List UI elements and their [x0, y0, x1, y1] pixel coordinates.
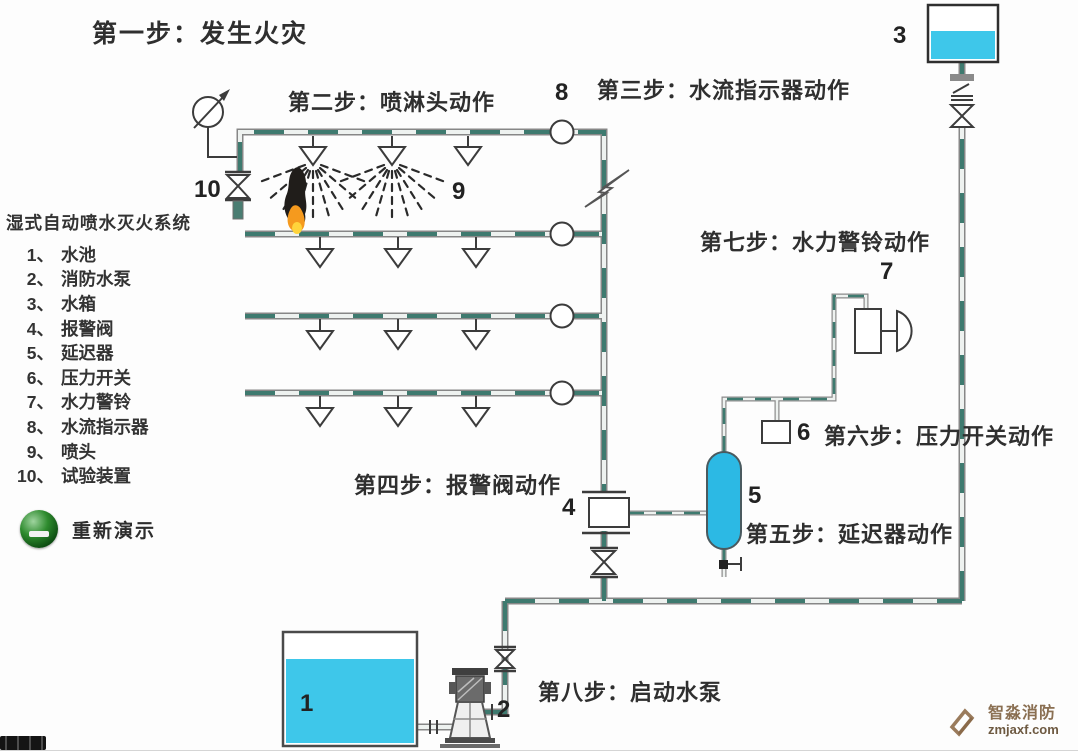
- flow-indicator-icons: [551, 121, 574, 405]
- wet-sprinkler-system-demo: 第一步：发生火灾 第二步：喷淋头动作 第三步：水流指示器动作 第四步：报警阀动作…: [0, 0, 1078, 751]
- component-number-pool: 1: [300, 690, 313, 718]
- water-pool-icon: [283, 632, 417, 746]
- step-1-label: 第一步：发生火灾: [92, 14, 308, 50]
- sprinkler-head-icon: [379, 147, 405, 165]
- fire-icon: [284, 167, 306, 234]
- component-number-tank: 3: [893, 22, 906, 50]
- sprinkler-row-2: [307, 237, 489, 267]
- watermark-logo-icon: [948, 701, 982, 741]
- legend-item-5: 5、延迟器: [12, 340, 242, 365]
- component-number-retarder: 5: [748, 482, 761, 510]
- sprinkler-row-1: [300, 136, 481, 165]
- step-7-label: 第七步：水力警铃动作: [700, 225, 930, 257]
- replay-button-label: 重新演示: [72, 516, 156, 543]
- sprinkler-row-3: [307, 319, 489, 349]
- step-4-label: 第四步：报警阀动作: [354, 468, 561, 500]
- sprinkler-row-4: [307, 396, 489, 426]
- step-5-label: 第五步：延迟器动作: [746, 517, 953, 549]
- legend-item-7: 7、水力警铃: [12, 390, 242, 415]
- legend-item-8: 8、水流指示器: [12, 414, 242, 439]
- legend-item-4: 4、报警阀: [12, 316, 242, 341]
- step-3-label: 第三步：水流指示器动作: [597, 73, 850, 105]
- discharge-check-valve-icon: [494, 647, 516, 671]
- spray-pattern: [257, 165, 448, 222]
- legend-item-9: 9、喷头: [12, 439, 242, 464]
- step-2-label: 第二步：喷淋头动作: [288, 85, 495, 117]
- corner-badge: [0, 736, 46, 750]
- water-tank-icon: [928, 5, 998, 62]
- legend-list: 1、水池 2、消防水泵 3、水箱 4、报警阀 5、延迟器 6、压力开关 7、水力…: [12, 242, 242, 488]
- legend-item-10: 10、试验装置: [12, 463, 242, 488]
- legend-item-1: 1、水池: [12, 242, 242, 267]
- step-8-label: 第八步：启动水泵: [538, 675, 722, 707]
- component-number-test-device: 10: [194, 176, 221, 204]
- component-number-alarm-valve: 4: [562, 494, 575, 522]
- legend-title: 湿式自动喷水灭火系统: [6, 210, 191, 235]
- watermark-site: zmjaxf.com: [988, 723, 1059, 737]
- component-number-alarm-bell: 7: [880, 258, 893, 286]
- legend-item-3: 3、水箱: [12, 291, 242, 316]
- test-valve-icon: [225, 172, 251, 219]
- watermark: 智淼消防 zmjaxf.com: [948, 701, 1059, 741]
- sprinkler-head-icon: [455, 147, 481, 165]
- component-number-flow-indicator: 8: [555, 79, 568, 107]
- legend-item-6: 6、压力开关: [12, 365, 242, 390]
- step-6-label: 第六步：压力开关动作: [824, 419, 1054, 451]
- sprinkler-head-icon: [300, 147, 326, 165]
- legend-item-2: 2、消防水泵: [12, 267, 242, 292]
- replay-sphere-icon: [20, 510, 58, 548]
- pressure-gauge-icon: [193, 89, 230, 128]
- pressure-switch-icon: [762, 421, 790, 443]
- tank-check-valve-icon: [950, 74, 974, 127]
- component-number-pressure-switch: 6: [797, 419, 810, 447]
- component-number-pump: 2: [497, 696, 510, 724]
- replay-button[interactable]: 重新演示: [20, 510, 156, 548]
- watermark-brand: 智淼消防: [988, 705, 1059, 723]
- alarm-bell-icon: [855, 309, 912, 353]
- component-number-sprinkler: 9: [452, 178, 465, 206]
